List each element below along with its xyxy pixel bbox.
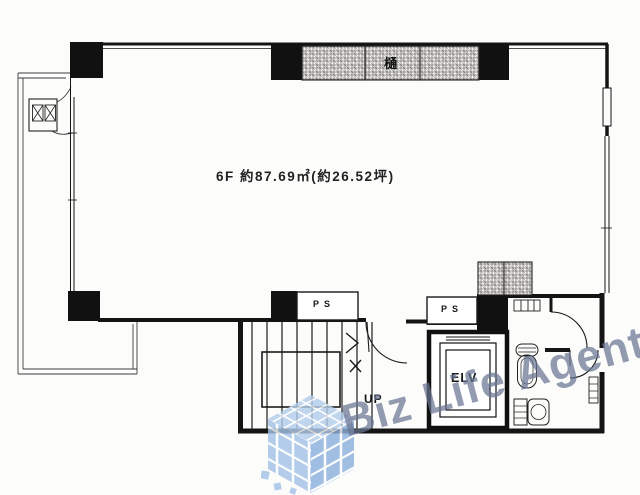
duct-hatch-box: [478, 262, 532, 295]
ps-left-label: PS: [313, 299, 335, 309]
lower-room-door-arc: [570, 350, 598, 378]
wall-piers: [68, 42, 509, 332]
stairs-up-label: UP: [364, 392, 383, 406]
washstand: [514, 399, 549, 425]
floorplan-canvas: 6F 約87.69㎡(約26.52坪) PS PS ELV UP 樋 Biz L…: [0, 0, 640, 495]
toilet-fixture: [516, 344, 538, 388]
sink: [514, 300, 540, 311]
staircase: [252, 322, 372, 431]
wall-shelf: [589, 377, 598, 403]
ps-right-label: PS: [441, 304, 463, 314]
room-area-label: 6F 約87.69㎡(約26.52坪): [216, 165, 395, 185]
left-balcony-outline: [18, 73, 137, 374]
elevator-label: ELV: [451, 371, 477, 385]
hatch-block-kanji-label: 樋: [384, 53, 397, 72]
meter-box: [29, 87, 73, 134]
floorplan-drawing: [0, 0, 640, 495]
toilet-area-walls: [545, 296, 598, 378]
toilet-door-arc: [551, 312, 587, 348]
stairs-direction-arrow: [346, 333, 361, 372]
stair-railing: [262, 352, 340, 407]
